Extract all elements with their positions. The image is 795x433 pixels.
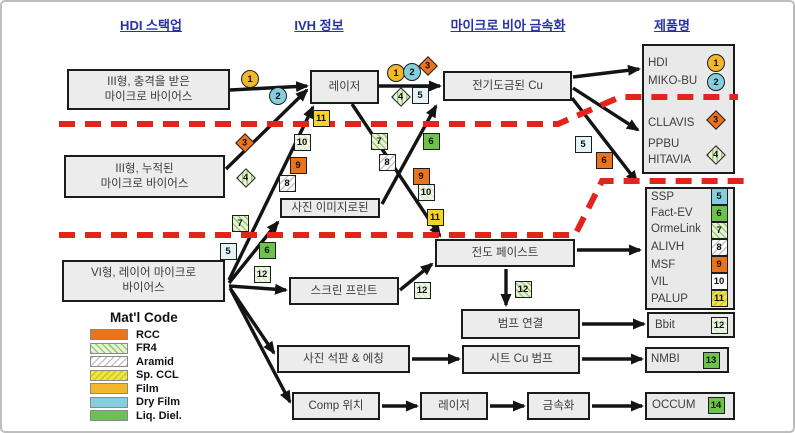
material-badge-9: 9 <box>711 256 728 273</box>
material-badge-5: 5 <box>711 188 728 205</box>
column-header-hdi-stackup: HDI 스택업 <box>120 15 182 34</box>
product-label-ppbu: PPBU <box>648 138 679 150</box>
material-badge-4: 4 <box>391 87 411 107</box>
legend-item-label: FR4 <box>136 342 157 354</box>
badge-number: 4 <box>713 150 718 160</box>
material-badge-5: 5 <box>575 136 592 153</box>
flow-arrow <box>230 288 274 353</box>
material-badge-3: 3 <box>235 133 255 153</box>
box-type3-staggered-microvias: III형, 충격을 받은 마이크로 바이어스 <box>67 69 230 110</box>
material-badge-8: 8 <box>279 175 296 192</box>
legend-swatch-spccl <box>90 370 128 381</box>
badge-number: 4 <box>243 173 248 183</box>
badge-number: 3 <box>713 115 718 125</box>
legend-swatch-film <box>90 383 128 394</box>
product-label-hdi: HDI <box>648 57 668 69</box>
product-label-fact-ev: Fact-EV <box>651 207 693 219</box>
material-badge-10: 10 <box>711 273 728 290</box>
material-badge-6: 6 <box>596 152 613 169</box>
product-label-ormelink: OrmeLink <box>651 223 701 235</box>
legend-swatch-aramid <box>90 356 128 367</box>
legend-item-liq-diel-: Liq. Diel. <box>90 409 182 423</box>
product-label-miko-bu: MIKO-BU <box>648 75 697 87</box>
material-badge-6: 6 <box>423 133 440 150</box>
product-label-ssp: SSP <box>651 191 674 203</box>
material-badge-12: 12 <box>711 317 728 334</box>
product-label-msf: MSF <box>651 259 675 271</box>
legend-title: Mat'l Code <box>110 310 182 325</box>
legend-swatch-dryfilm <box>90 397 128 408</box>
material-badge-9: 9 <box>290 157 307 174</box>
flow-arrow <box>573 88 638 130</box>
material-badge-14: 14 <box>708 397 725 414</box>
material-badge-10: 10 <box>418 184 435 201</box>
material-badge-1: 1 <box>707 54 725 72</box>
legend-item-film: Film <box>90 382 182 396</box>
legend-item-label: Film <box>136 383 159 395</box>
box-comp-placement: Comp 위치 <box>292 392 380 420</box>
material-badge-11: 11 <box>313 110 330 127</box>
product-label-nmbi: NMBI <box>651 353 680 365</box>
legend-item-sp-ccl: Sp. CCL <box>90 369 182 383</box>
box-conductive-paste: 전도 페이스트 <box>435 239 575 267</box>
box-laser-1: 레이저 <box>310 70 379 104</box>
material-badge-7: 7 <box>711 222 728 239</box>
legend-swatch-rcc <box>90 329 128 340</box>
material-badge-3: 3 <box>418 56 438 76</box>
material-badge-2: 2 <box>707 73 725 91</box>
legend-swatch-liqdiel <box>90 410 128 421</box>
material-badge-12: 12 <box>254 266 271 283</box>
material-badge-7: 7 <box>371 133 388 150</box>
box-sheet-cu-bump: 시트 Cu 범프 <box>462 345 580 374</box>
hdi-process-flow-diagram: HDI 스택업 IVH 정보 마이크로 비아 금속화 제품명 Mat'l Cod… <box>0 0 795 433</box>
material-badge-12: 12 <box>515 281 532 298</box>
legend-swatch-fr4 <box>90 343 128 354</box>
material-badge-8: 8 <box>711 239 728 256</box>
badge-number: 3 <box>242 138 247 148</box>
product-label-palup: PALUP <box>651 293 688 305</box>
badge-number: 4 <box>398 92 403 102</box>
box-photo-imaged: 사진 이미지로된 <box>280 198 380 218</box>
material-badge-6: 6 <box>259 242 276 259</box>
legend-items: RCCFR4AramidSp. CCLFilmDry FilmLiq. Diel… <box>90 328 182 423</box>
product-label-alivh: ALIVH <box>651 241 684 253</box>
material-code-legend: Mat'l Code RCCFR4AramidSp. CCLFilmDry Fi… <box>90 310 182 423</box>
material-badge-7: 7 <box>232 215 249 232</box>
legend-item-label: Aramid <box>136 356 174 368</box>
box-electroplated-cu: 전기도금된 Cu <box>443 71 572 101</box>
legend-item-label: Dry Film <box>136 396 180 408</box>
product-label-cllavis: CLLAVIS <box>648 117 694 129</box>
legend-item-dry-film: Dry Film <box>90 396 182 410</box>
material-badge-11: 11 <box>427 209 444 226</box>
flow-arrow <box>573 69 639 77</box>
material-badge-5: 5 <box>412 87 429 104</box>
legend-item-label: Liq. Diel. <box>136 410 182 422</box>
material-badge-5: 5 <box>220 243 237 260</box>
material-badge-12: 12 <box>414 282 431 299</box>
material-badge-4: 4 <box>236 168 256 188</box>
product-label-bbit: Bbit <box>655 319 675 331</box>
column-header-microvia-metallization: 마이크로 비아 금속화 <box>451 15 566 34</box>
legend-item-rcc: RCC <box>90 328 182 342</box>
box-photo-litho-etching: 사진 석판 & 에칭 <box>277 345 410 373</box>
product-label-hitavia: HITAVIA <box>648 154 691 166</box>
legend-item-label: RCC <box>136 329 160 341</box>
product-label-occum: OCCUM <box>652 399 695 411</box>
material-badge-9: 9 <box>413 168 430 185</box>
box-screen-print: 스크린 프린트 <box>289 277 399 305</box>
box-type3-stacked-microvias: III형, 누적된 마이크로 바이어스 <box>64 155 225 198</box>
box-metallization: 금속화 <box>527 392 590 420</box>
legend-item-label: Sp. CCL <box>136 369 179 381</box>
box-bump-connection: 범프 연결 <box>461 309 580 339</box>
flow-arrow <box>230 86 307 90</box>
product-label-vil: VIL <box>651 276 668 288</box>
material-badge-11: 11 <box>711 290 728 307</box>
column-header-product-name: 제품명 <box>654 15 690 34</box>
material-badge-10: 10 <box>294 134 311 151</box>
material-badge-13: 13 <box>703 352 720 369</box>
material-badge-8: 8 <box>379 154 396 171</box>
box-type6-layer-microvias: VI형, 레이어 마이크로 바이어스 <box>62 260 225 302</box>
material-badge-2: 2 <box>269 87 287 105</box>
legend-item-fr4: FR4 <box>90 342 182 356</box>
material-badge-6: 6 <box>711 205 728 222</box>
badge-number: 3 <box>425 61 430 71</box>
legend-item-aramid: Aramid <box>90 355 182 369</box>
material-badge-1: 1 <box>241 70 259 88</box>
flow-arrow <box>229 286 286 290</box>
column-header-ivh-info: IVH 정보 <box>294 15 343 34</box>
box-laser-2: 레이저 <box>420 392 488 420</box>
